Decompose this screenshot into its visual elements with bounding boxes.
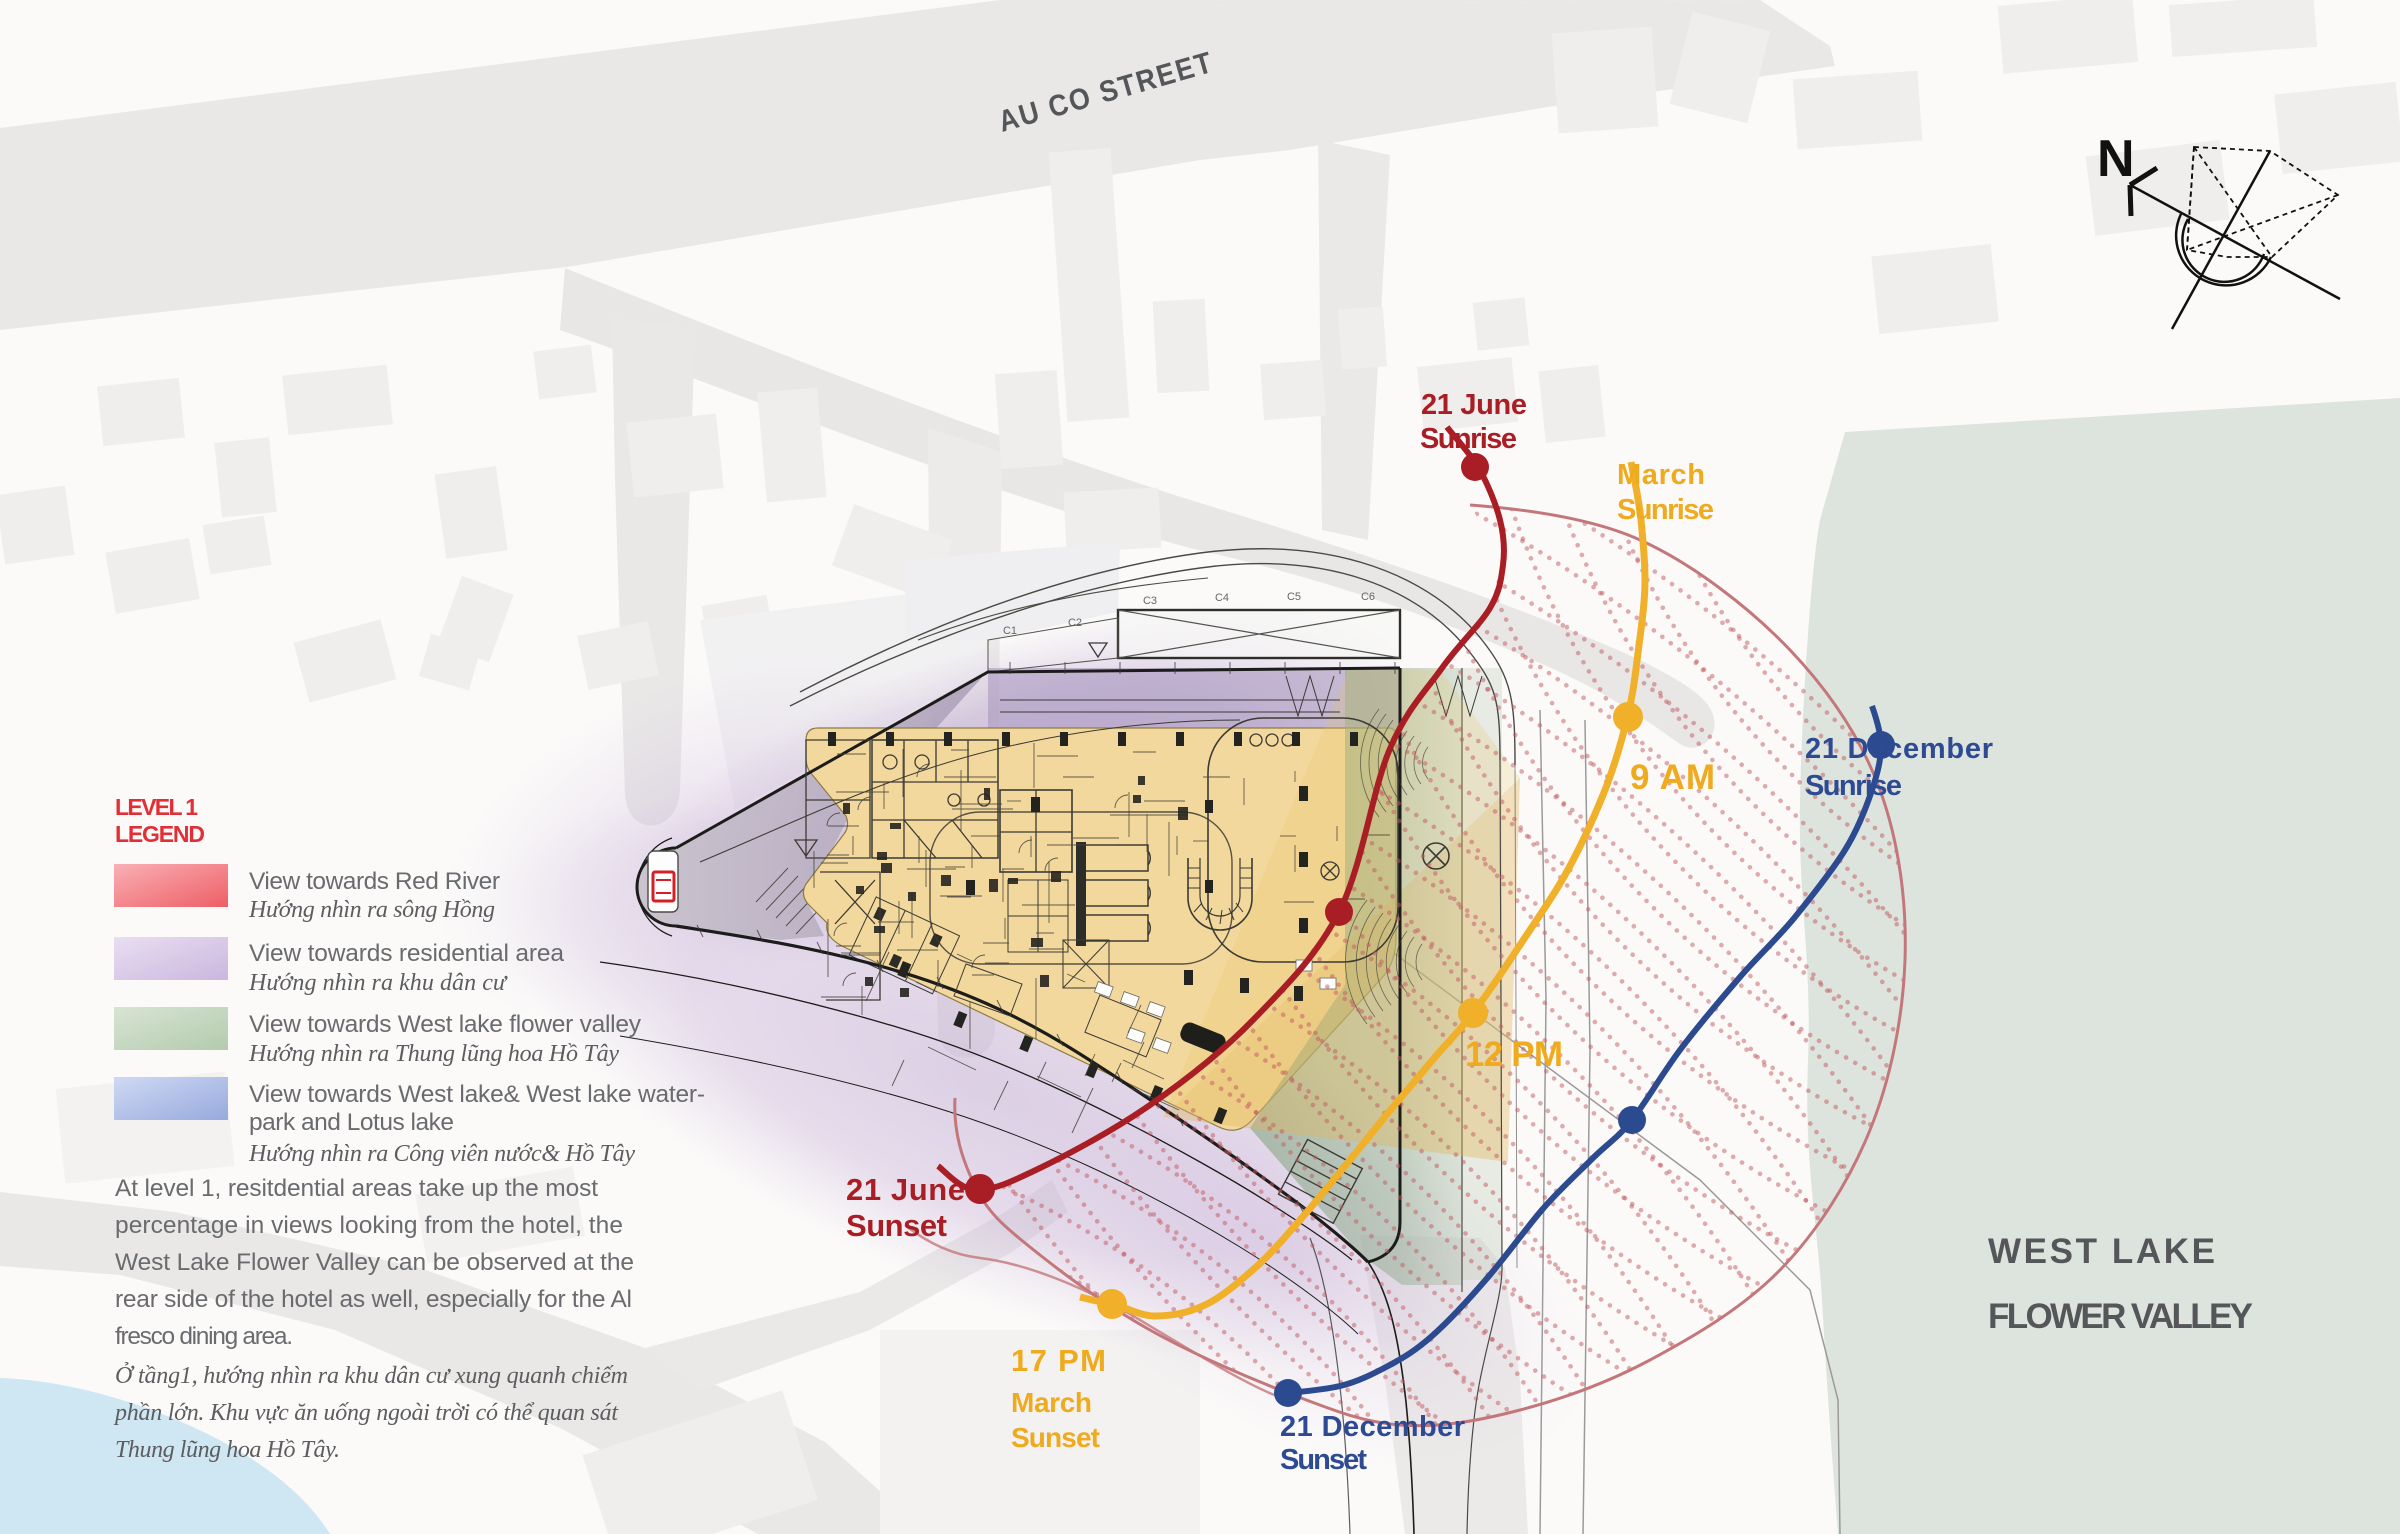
svg-text:Hướng nhìn ra sông Hồng: Hướng nhìn ra sông Hồng	[248, 897, 495, 923]
svg-text:West Lake Flower Valley can be: West Lake Flower Valley can be observed …	[115, 1249, 634, 1276]
svg-text:View towards West lake& West l: View towards West lake& West lake water-	[249, 1081, 705, 1108]
svg-text:rear side of the hotel as well: rear side of the hotel as well, especial…	[115, 1286, 632, 1313]
svg-text:At level 1, resitdential areas: At level 1, resitdential areas take up t…	[115, 1175, 598, 1202]
svg-text:C5: C5	[1287, 591, 1301, 603]
svg-text:C3: C3	[1143, 595, 1157, 607]
svg-text:Sunrise: Sunrise	[1617, 494, 1714, 526]
svg-text:Sunset: Sunset	[1280, 1444, 1367, 1476]
svg-text:Hướng nhìn ra khu dân cư: Hướng nhìn ra khu dân cư	[248, 970, 508, 996]
svg-text:21 December: 21 December	[1805, 733, 1993, 765]
svg-text:12 PM: 12 PM	[1465, 1035, 1563, 1074]
svg-text:LEGEND: LEGEND	[115, 821, 205, 847]
svg-text:fresco dining area.: fresco dining area.	[115, 1323, 293, 1350]
svg-text:Sunrise: Sunrise	[1420, 423, 1517, 455]
svg-text:FLOWER VALLEY: FLOWER VALLEY	[1988, 1297, 2253, 1336]
svg-text:Hướng nhìn ra Thung lũng hoa H: Hướng nhìn ra Thung lũng hoa Hồ Tây	[248, 1041, 619, 1067]
svg-text:C2: C2	[1068, 617, 1082, 629]
svg-text:Ở tầng1, hướng nhìn ra khu dân: Ở tầng1, hướng nhìn ra khu dân cư xung q…	[115, 1363, 628, 1389]
svg-text:percentage in views looking fr: percentage in views looking from the hot…	[115, 1212, 623, 1239]
svg-text:Hướng nhìn ra Công viên nước&: Hướng nhìn ra Công viên nước& Hồ Tây	[248, 1141, 635, 1167]
svg-text:Sunset: Sunset	[846, 1208, 947, 1243]
svg-text:Thung lũng hoa Hồ Tây.: Thung lũng hoa Hồ Tây.	[115, 1437, 340, 1463]
svg-text:21 June: 21 June	[1421, 389, 1527, 421]
svg-text:21 June: 21 June	[846, 1172, 965, 1207]
svg-text:9 AM: 9 AM	[1630, 758, 1715, 797]
svg-text:park and Lotus lake: park and Lotus lake	[249, 1109, 454, 1136]
svg-text:March: March	[1617, 459, 1705, 491]
svg-text:21 December: 21 December	[1280, 1411, 1465, 1443]
svg-text:phần lớn. Khu vực ăn uống ngoà: phần lớn. Khu vực ăn uống ngoài trời có …	[113, 1400, 619, 1426]
svg-text:View towards Red River: View towards Red River	[249, 868, 500, 895]
svg-text:March: March	[1011, 1387, 1092, 1418]
svg-text:C6: C6	[1361, 591, 1375, 603]
svg-text:LEVEL 1: LEVEL 1	[115, 794, 198, 820]
svg-text:View towards residential area: View towards residential area	[249, 940, 564, 967]
svg-text:C4: C4	[1215, 592, 1229, 604]
svg-text:17 PM: 17 PM	[1011, 1343, 1106, 1378]
svg-text:Sunrise: Sunrise	[1805, 770, 1902, 802]
svg-text:Sunset: Sunset	[1011, 1422, 1100, 1453]
svg-text:View towards West lake flower: View towards West lake flower valley	[249, 1011, 642, 1038]
svg-text:N: N	[2097, 130, 2135, 188]
